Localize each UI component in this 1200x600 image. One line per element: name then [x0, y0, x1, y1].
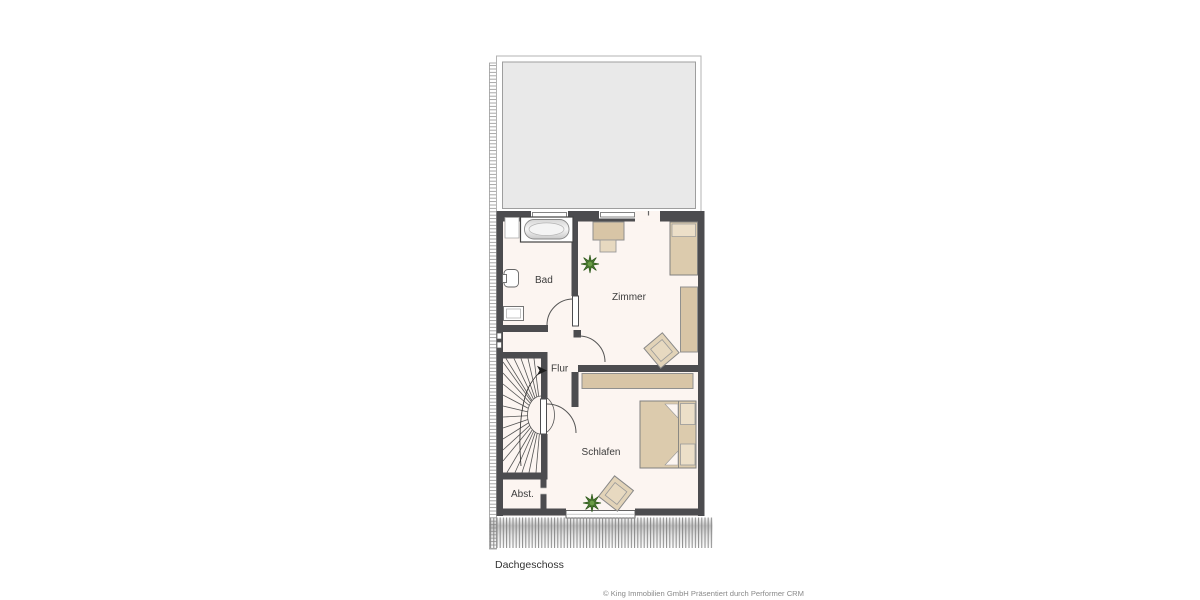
stair-door-leaf	[541, 399, 547, 434]
sink-icon	[504, 307, 524, 321]
terrace-surface	[503, 62, 696, 209]
window-zimmer	[599, 211, 636, 219]
roof-slope-hatch	[490, 518, 713, 549]
bad-door-leaf	[573, 296, 579, 326]
wall-bad-flur	[503, 325, 548, 332]
room-label-abst: Abst.	[511, 489, 534, 500]
wall-zimmer-schlafen	[578, 365, 698, 372]
terrace-opening	[635, 211, 660, 222]
wc-icon	[503, 270, 519, 288]
wardrobe-icon	[582, 374, 693, 389]
plant-icon	[581, 255, 599, 273]
floor-title: Dachgeschoss	[495, 559, 564, 571]
party-wall-hatch	[490, 63, 497, 549]
room-label-schlafen: Schlafen	[582, 447, 621, 458]
wall-stair-top	[503, 352, 548, 359]
wall-stair-bottom	[503, 473, 548, 480]
shaft-box-1	[497, 333, 502, 339]
plant-icon	[583, 494, 601, 512]
room-label-flur: Flur	[551, 364, 569, 375]
room-label-zimmer: Zimmer	[612, 292, 647, 303]
window-schlafen	[566, 511, 635, 519]
wall-stair-right-lower	[541, 434, 548, 479]
bath-shelf	[505, 218, 519, 239]
wall-left	[497, 211, 504, 516]
credit-line: © King Immobilien GmbH Präsentiert durch…	[603, 589, 804, 598]
roof-terrace	[497, 56, 702, 213]
floor-plan-canvas: Bad Zimmer Flur Schlafen Abst. Dachgesch…	[0, 0, 1200, 600]
single-bed-icon	[670, 222, 698, 275]
desk-icon	[593, 222, 624, 240]
wall-right	[698, 211, 705, 516]
desk-chair-icon	[600, 240, 616, 252]
wall-abst-upper	[541, 480, 547, 488]
wall-bottom-left	[497, 509, 567, 516]
room-label-bad: Bad	[535, 275, 553, 286]
wall-bottom-right	[635, 509, 705, 516]
floor-plan-page: Bad Zimmer Flur Schlafen Abst. Dachgesch…	[0, 0, 1200, 600]
double-bed-icon	[640, 401, 696, 468]
wall-stair-right-upper	[541, 352, 548, 399]
shaft-box-2	[497, 342, 502, 348]
wall-flur-schlafen-stub	[572, 372, 579, 407]
wall-abst-lower	[541, 495, 547, 510]
side-table-icon	[681, 287, 698, 352]
bathtub-icon	[521, 217, 574, 242]
